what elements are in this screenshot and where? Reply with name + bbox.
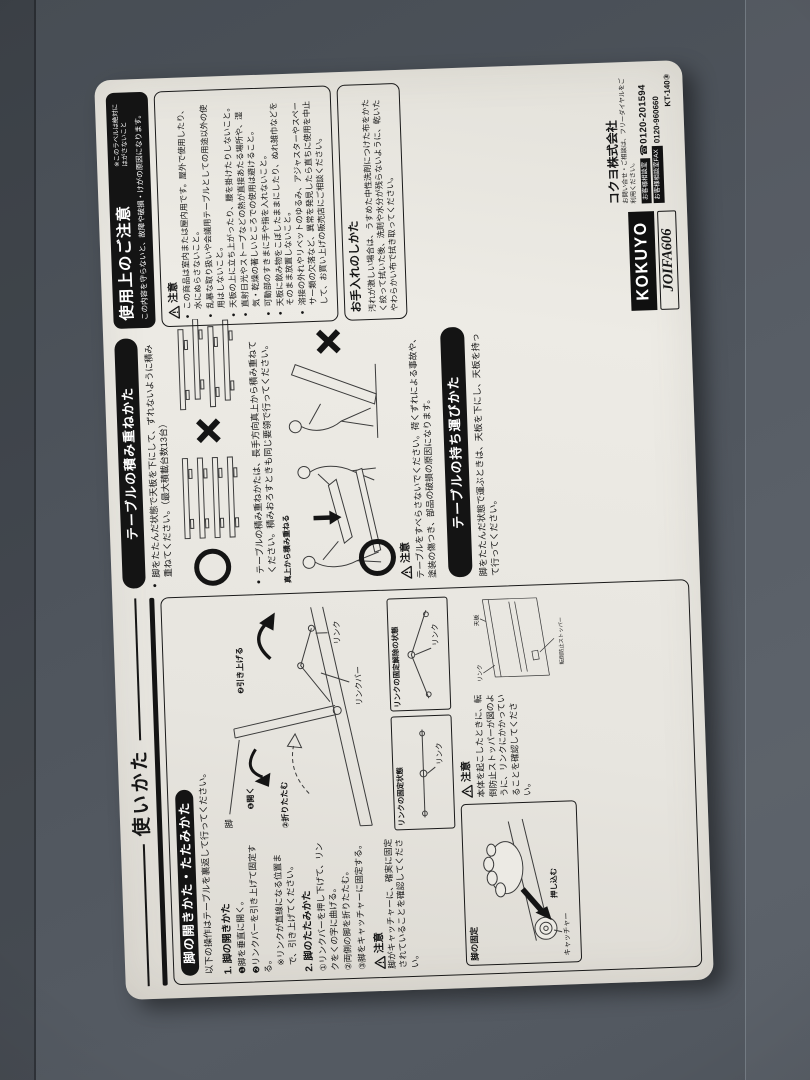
photo-of-table-underside: 使いかた 脚の開きかた・たたみかた 以下の操作はテーブルを裏返して行ってください… [0, 0, 810, 1080]
photo-vignette [0, 0, 810, 1080]
